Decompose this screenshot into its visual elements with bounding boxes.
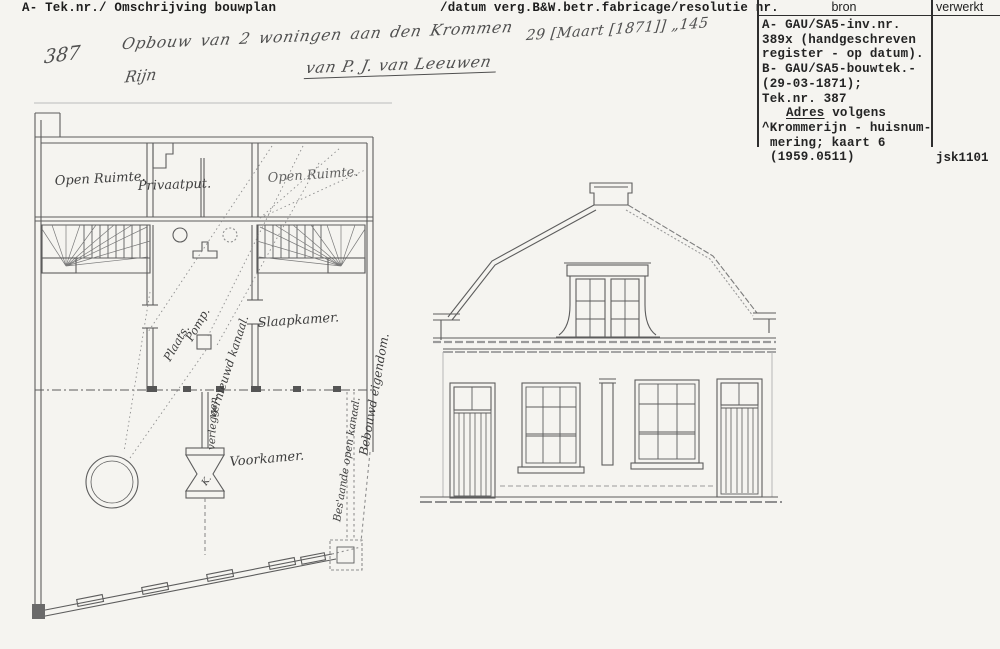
table-border-left [757,0,759,147]
header-right-label: /datum verg.B&W.betr.fabricage/resolutie… [440,1,779,15]
bron-line: 389x (handgeschreven [762,33,997,48]
bron-line: (29-03-1871); [762,77,997,92]
facade-lines [420,183,782,502]
room-label-privaatput: Privaatput. [137,176,212,194]
handwritten-applicant: van P. J. van Leeuwen [304,52,500,79]
column-header-bron: bron [757,0,931,14]
bron-line-adres: Adres volgens [762,106,997,121]
room-label-slaapkamer: Slaapkamer. [257,310,339,331]
scanned-archive-card: A- Tek.nr./ Omschrijving bouwplan /datum… [0,0,1000,649]
room-label-open-ruimte-left: Open Ruimte. [54,169,146,189]
column-header-verwerkt: verwerkt [936,0,983,14]
bron-line: Tek.nr. 387 [762,92,997,107]
label-bebouwd-eigendom: Bebouwd eigendom. [356,332,391,457]
floorplan-drawing: Open Ruimte. Privaatput. Open Ruimte. Sl… [20,100,405,645]
handwritten-description: Opbouw van 2 woningen aan den Krommen [120,18,514,53]
header-left-label: A- Tek.nr./ Omschrijving bouwplan [22,1,276,15]
floorplan-labels: Open Ruimte. Privaatput. Open Ruimte. Sl… [54,165,391,524]
handwritten-date: 29 [Maart [1871]] „145 [525,15,709,44]
bron-line: ^Krommerijn - huisnum- [762,121,997,136]
processing-code: jsk1101 [936,151,989,165]
label-verleggen: verleggen. [206,393,221,450]
label-pomp: Pomp. [182,305,213,344]
adres-label: Adres [786,106,825,120]
handwritten-description2: Rijn [124,65,158,86]
handwritten-tek-nr: 387 [43,42,81,69]
facade-drawing [420,155,790,535]
room-label-open-ruimte-right: Open Ruimte. [267,165,359,186]
room-label-voorkamer: Voorkamer. [229,449,305,470]
bron-line: B- GAU/SA5-bouwtek.- [762,62,997,77]
label-k-mark: K. [200,474,214,489]
bron-line: register - op datum). [762,47,997,62]
bron-line: mering; kaart 6 [762,136,997,151]
adres-rest: volgens [825,106,887,120]
bron-notes: A- GAU/SA5-inv.nr. 389x (handgeschreven … [762,18,997,165]
bron-line: A- GAU/SA5-inv.nr. [762,18,997,33]
table-header-underline [757,15,1000,17]
